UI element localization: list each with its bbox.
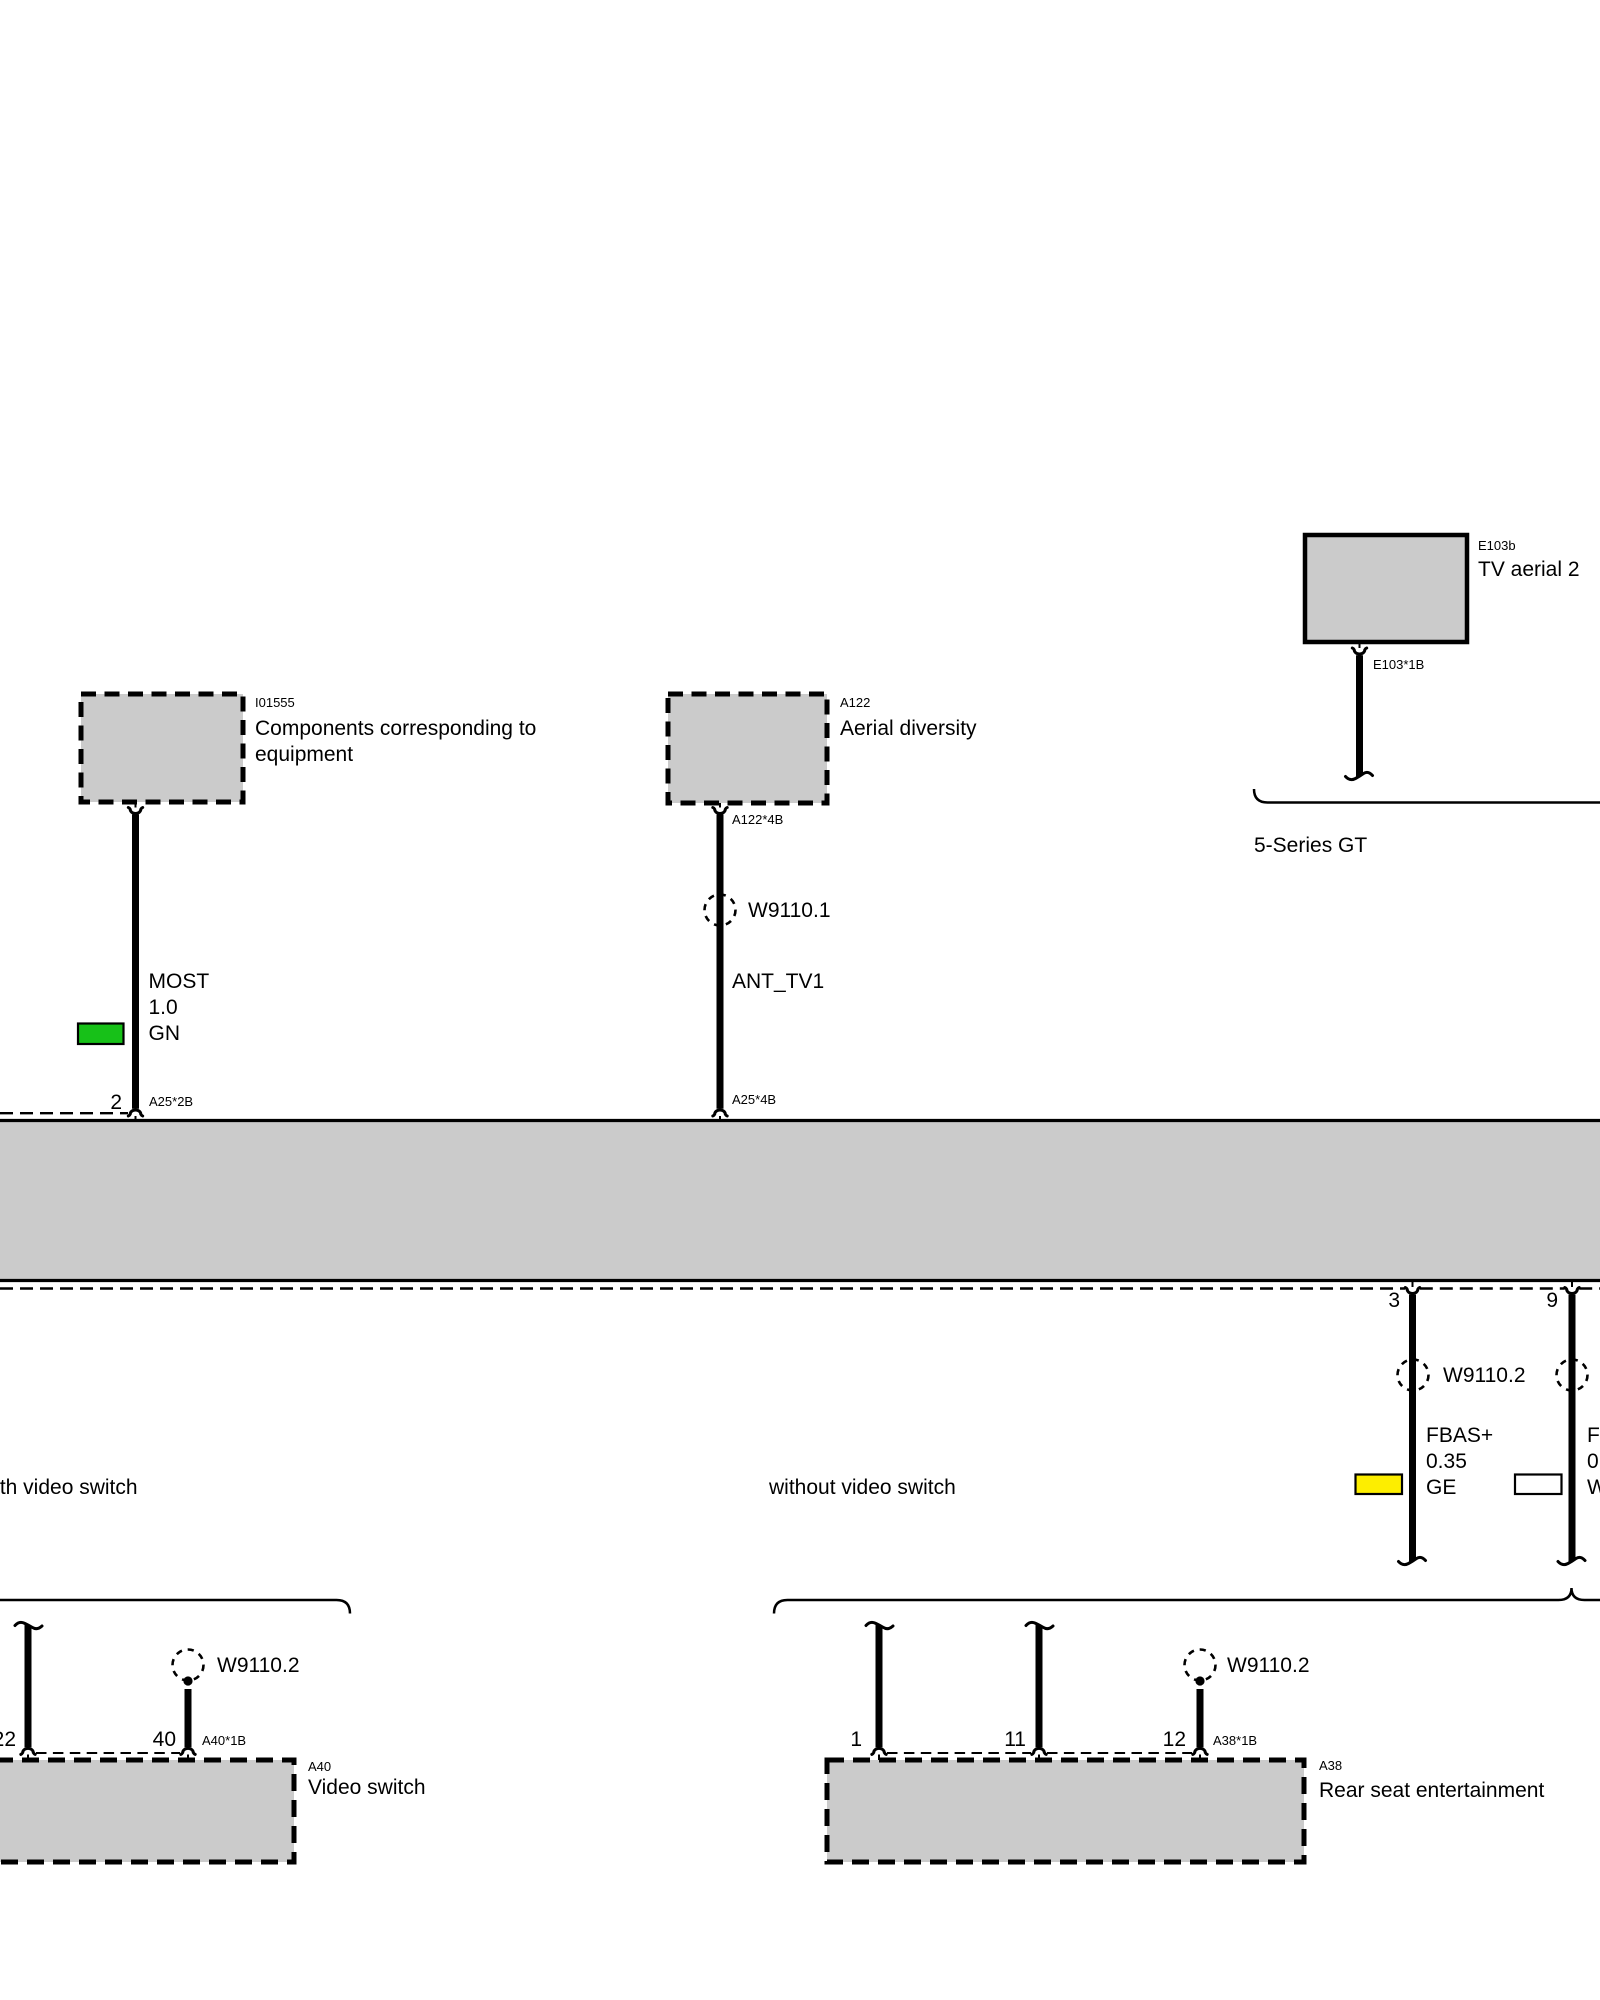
svg-text:FBAS+: FBAS+ xyxy=(1426,1424,1493,1447)
svg-text:GE: GE xyxy=(1426,1476,1456,1499)
svg-text:GN: GN xyxy=(149,1022,181,1045)
svg-text:A25*2B: A25*2B xyxy=(149,1094,193,1109)
svg-text:0.35: 0.35 xyxy=(1587,1450,1600,1473)
svg-text:FBAS-: FBAS- xyxy=(1587,1424,1600,1447)
svg-text:A122*4B: A122*4B xyxy=(732,812,783,827)
svg-text:5-Series GT: 5-Series GT xyxy=(1254,834,1367,857)
svg-text:2: 2 xyxy=(110,1091,122,1114)
svg-text:0.35: 0.35 xyxy=(1426,1450,1467,1473)
svg-text:Components corresponding to: Components corresponding to xyxy=(255,717,536,740)
svg-text:22: 22 xyxy=(0,1728,16,1751)
svg-text:A40*1B: A40*1B xyxy=(202,1733,246,1748)
svg-text:without video switch: without video switch xyxy=(768,1476,956,1499)
svg-text:TV aerial 2: TV aerial 2 xyxy=(1478,558,1580,581)
svg-text:40: 40 xyxy=(153,1728,176,1751)
svg-text:W9110.2: W9110.2 xyxy=(1443,1364,1526,1387)
svg-text:9: 9 xyxy=(1546,1289,1558,1312)
svg-text:MOST: MOST xyxy=(149,970,210,993)
svg-text:3: 3 xyxy=(1388,1289,1400,1312)
svg-text:Rear seat entertainment: Rear seat entertainment xyxy=(1319,1779,1544,1802)
svg-text:WS: WS xyxy=(1587,1476,1600,1499)
svg-text:A122: A122 xyxy=(840,695,870,710)
svg-text:with video switch: with video switch xyxy=(0,1476,138,1499)
svg-text:ANT_TV1: ANT_TV1 xyxy=(732,970,824,993)
svg-text:A40: A40 xyxy=(308,1759,331,1774)
svg-text:12: 12 xyxy=(1163,1728,1186,1751)
svg-text:E103*1B: E103*1B xyxy=(1373,657,1424,672)
svg-text:Aerial diversity: Aerial diversity xyxy=(840,717,977,740)
svg-text:Video switch: Video switch xyxy=(308,1776,426,1799)
svg-text:A25*4B: A25*4B xyxy=(732,1092,776,1107)
svg-text:1.0: 1.0 xyxy=(149,996,178,1019)
svg-text:equipment: equipment xyxy=(255,743,353,766)
svg-text:11: 11 xyxy=(1004,1728,1026,1751)
svg-text:E103b: E103b xyxy=(1478,538,1516,553)
svg-text:W9110.2: W9110.2 xyxy=(217,1654,300,1677)
svg-text:A38: A38 xyxy=(1319,1758,1342,1773)
svg-text:W9110.1: W9110.1 xyxy=(748,899,831,922)
svg-text:I01555: I01555 xyxy=(255,695,295,710)
svg-text:1: 1 xyxy=(850,1728,862,1751)
svg-text:W9110.2: W9110.2 xyxy=(1227,1654,1310,1677)
svg-text:A38*1B: A38*1B xyxy=(1213,1733,1257,1748)
